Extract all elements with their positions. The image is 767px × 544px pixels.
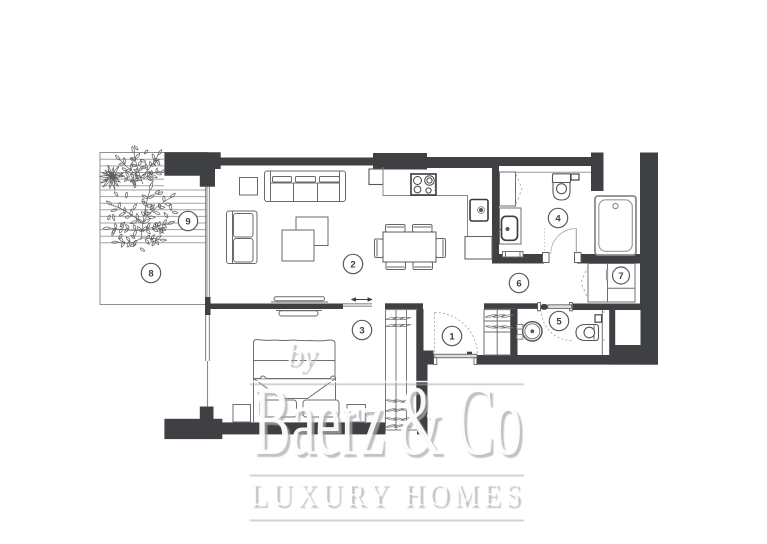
svg-text:6: 6 <box>516 279 521 290</box>
svg-text:7: 7 <box>618 271 623 282</box>
svg-text:1: 1 <box>449 332 455 343</box>
svg-text:3: 3 <box>359 326 364 337</box>
svg-text:9: 9 <box>185 217 190 228</box>
svg-text:8: 8 <box>148 269 153 280</box>
svg-text:2: 2 <box>350 260 355 271</box>
svg-text:5: 5 <box>556 317 562 328</box>
svg-text:4: 4 <box>555 214 561 225</box>
